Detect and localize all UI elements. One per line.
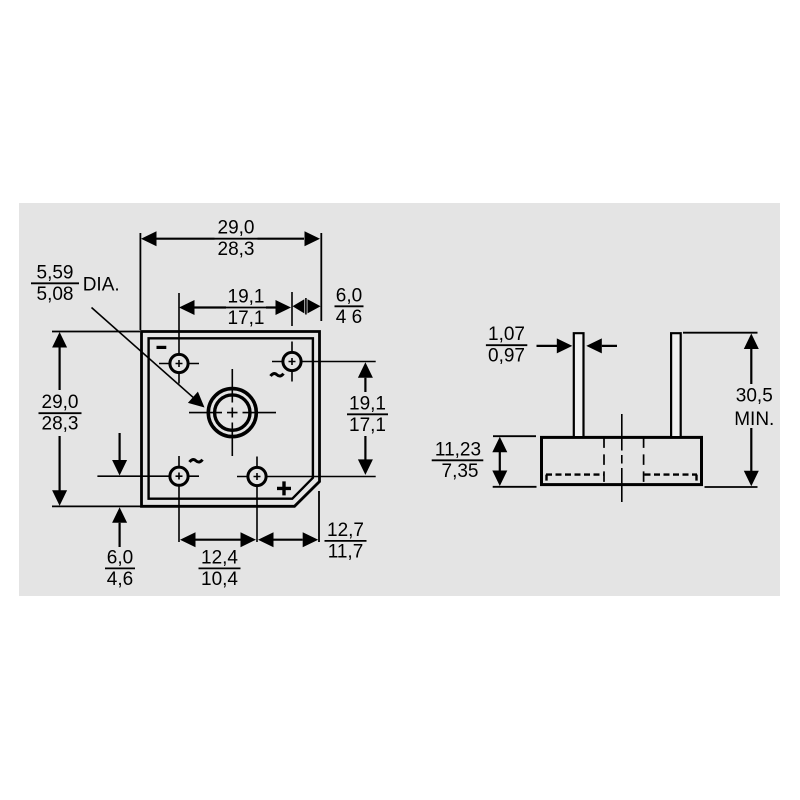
svg-text:7,35: 7,35 [442,461,479,482]
svg-text:DIA.: DIA. [83,274,120,295]
svg-text:19,1: 19,1 [349,393,386,414]
svg-text:19,1: 19,1 [228,287,265,308]
svg-text:4,6: 4,6 [107,569,133,590]
svg-text:0,97: 0,97 [488,346,525,367]
svg-text:17,1: 17,1 [228,308,265,329]
svg-text:28,3: 28,3 [218,239,255,260]
svg-text:5,59: 5,59 [37,262,74,283]
svg-text:MIN.: MIN. [734,409,774,430]
svg-text:6,0: 6,0 [107,547,133,568]
svg-text:1,07: 1,07 [488,324,525,345]
svg-text:17,1: 17,1 [349,415,386,436]
svg-text:29,0: 29,0 [42,392,79,413]
svg-text:11,7: 11,7 [328,541,364,562]
svg-text:11,23: 11,23 [435,439,481,460]
svg-text:10,4: 10,4 [201,569,238,590]
svg-text:28,3: 28,3 [42,414,79,435]
svg-text:12,4: 12,4 [201,547,238,568]
svg-text:6,0: 6,0 [336,285,362,306]
svg-text:12,7: 12,7 [327,520,364,541]
svg-text:4 6: 4 6 [336,307,362,328]
svg-text:29,0: 29,0 [218,218,255,239]
svg-text:30,5: 30,5 [736,386,773,407]
svg-text:5,08: 5,08 [37,284,74,305]
